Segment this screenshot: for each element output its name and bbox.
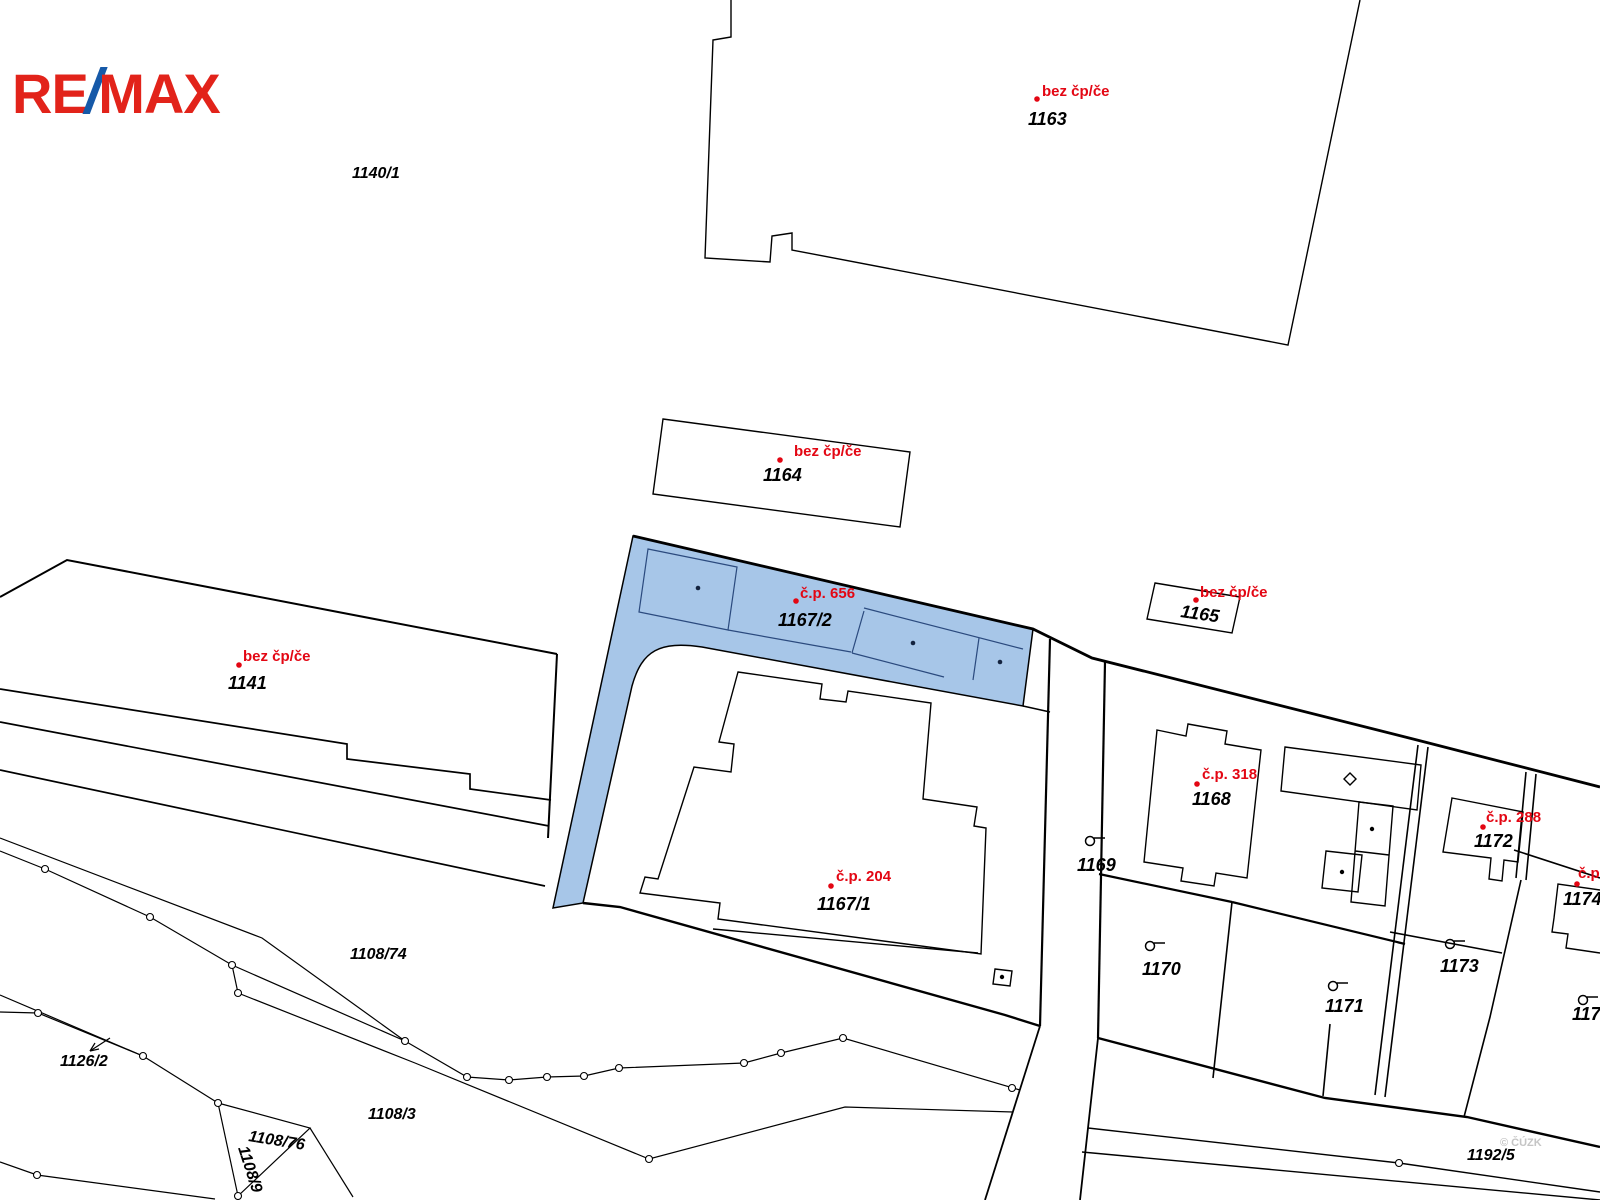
label-bez-cpce-1164: bez čp/če	[794, 443, 862, 460]
parcel-number-1167-2: 1167/2	[778, 610, 832, 630]
building-dot	[998, 660, 1003, 665]
parcel-number-1165: 1165	[1179, 601, 1221, 626]
yard-symbol-1170	[1146, 942, 1166, 951]
cadastral-map: bez čp/če bez čp/če č.p. 656 bez čp/če b…	[0, 0, 1600, 1200]
building-dot	[1340, 870, 1344, 874]
diamond-symbol	[1344, 773, 1356, 785]
parcel-number-1171: 1171	[1325, 996, 1364, 1016]
parcel-number-1164: 1164	[763, 465, 802, 485]
parcel-number-1169: 1169	[1077, 855, 1116, 875]
label-cp-204: č.p. 204	[836, 868, 892, 885]
logo-re: RE	[12, 62, 88, 125]
building-1163-outline	[705, 0, 1360, 345]
parcel-number-1170: 1170	[1142, 959, 1181, 979]
parcel-number-1192-5: 1192/5	[1467, 1147, 1516, 1164]
label-cp-288: č.p. 288	[1486, 809, 1541, 826]
building-rect-east-of-1168	[1281, 747, 1421, 906]
building-dot	[1000, 975, 1004, 979]
label-cp-edge: č.p.	[1578, 865, 1600, 882]
map-canvas: bez čp/če bez čp/če č.p. 656 bez čp/če b…	[0, 0, 1600, 1200]
parcel-number-1140-1: 1140/1	[352, 165, 400, 182]
building-dot	[1370, 827, 1374, 831]
survey-polylines	[0, 838, 1020, 1199]
label-cp-656: č.p. 656	[800, 585, 855, 602]
label-bez-cpce-1141: bez čp/če	[243, 648, 311, 665]
building-dot	[696, 586, 701, 591]
yard-symbols	[1086, 837, 1599, 1005]
highlighted-parcel-shape	[553, 536, 1033, 908]
remax-logo: RE/MAX	[12, 56, 220, 128]
parcel-number-1168: 1168	[1192, 789, 1231, 809]
label-cp-318: č.p. 318	[1202, 766, 1257, 783]
label-bez-cpce-1163: bez čp/če	[1042, 83, 1110, 100]
highlighted-parcel-1167-2	[553, 536, 1033, 908]
parcel-number-1173: 1173	[1440, 956, 1479, 976]
parcel-number-1175: 1175	[1572, 1004, 1600, 1024]
arrow-1126-2	[90, 1038, 110, 1051]
strip-1141-lines	[0, 560, 557, 886]
yard-symbol-1173	[1446, 940, 1466, 949]
parcel-number-1108-9: 1108/9	[234, 1144, 265, 1195]
parcel-number-1172: 1172	[1474, 831, 1513, 851]
parcel-number-1167-1: 1167/1	[817, 894, 871, 914]
parcel-number-1108-3: 1108/3	[368, 1106, 416, 1123]
parcel-number-1126-2: 1126/2	[60, 1053, 108, 1070]
label-bez-cpce-1165: bez čp/če	[1200, 584, 1268, 601]
yard-symbol-1171	[1329, 982, 1349, 991]
logo-max: MAX	[98, 62, 219, 125]
parcel-number-1174-1: 1174/1	[1563, 889, 1600, 909]
parcel-number-1108-74: 1108/74	[350, 946, 407, 963]
building-1167-1-outline	[640, 672, 1050, 986]
building-dot	[911, 641, 916, 646]
parcel-number-1163: 1163	[1028, 109, 1067, 129]
cuzk-watermark: © ČÚZK	[1500, 1136, 1542, 1149]
parcel-number-1108-76: 1108/76	[247, 1128, 306, 1154]
parcel-number-1141: 1141	[228, 673, 267, 693]
